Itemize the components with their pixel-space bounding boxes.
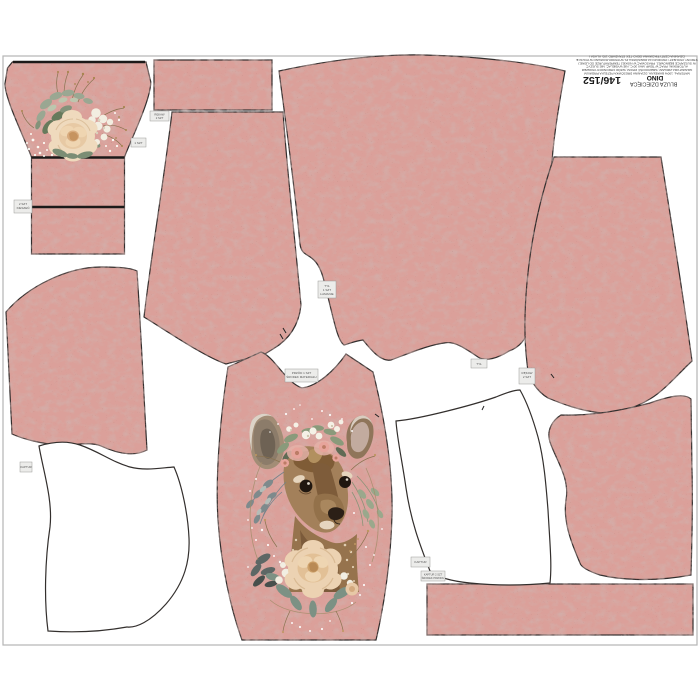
svg-text:TYŁ: TYŁ: [476, 362, 482, 366]
svg-text:ŚRODEK MATERIAŁU: ŚRODEK MATERIAŁU: [286, 374, 316, 379]
svg-text:2 SZT: 2 SZT: [523, 375, 531, 379]
svg-text:KAPTUR: KAPTUR: [20, 465, 31, 469]
svg-text:2 SZT: 2 SZT: [156, 116, 164, 120]
svg-text:KAPTUR: KAPTUR: [414, 560, 427, 564]
svg-text:DZIANINA CERTYFIKOWANA OEKO-TE: DZIANINA CERTYFIKOWANA OEKO-TEX STANDARD…: [589, 55, 685, 59]
svg-text:KIESZEŃ: KIESZEŃ: [17, 206, 30, 210]
svg-text:KAPTUR 2 SZT: KAPTUR 2 SZT: [424, 573, 443, 577]
svg-text:ŁAMANIE: ŁAMANIE: [320, 292, 333, 296]
svg-text:1 SZT: 1 SZT: [134, 141, 142, 145]
